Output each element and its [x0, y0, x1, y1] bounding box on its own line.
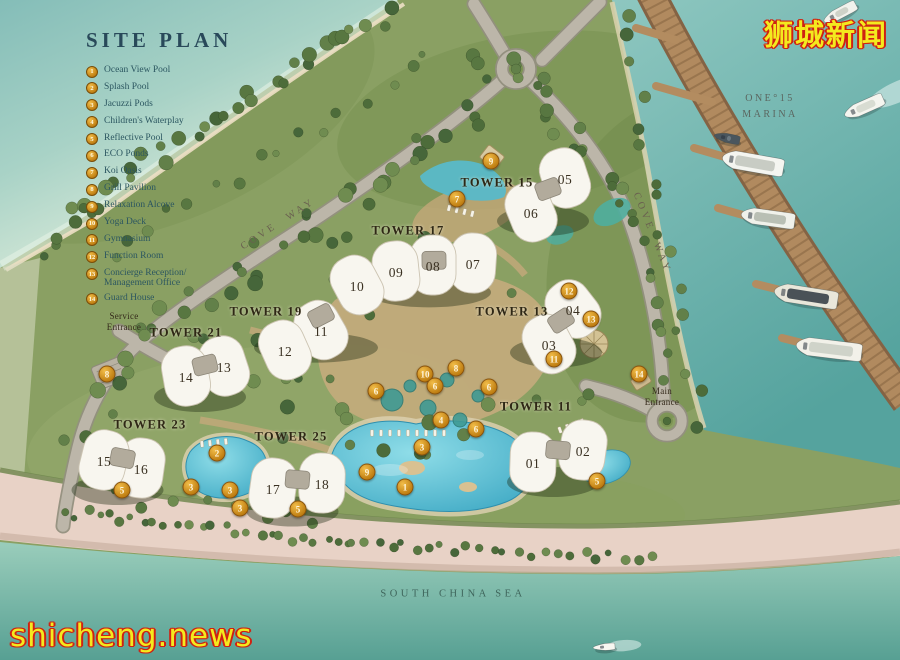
legend-label: Yoga Deck: [104, 217, 146, 227]
watermark-top-right: 狮城新闻: [764, 12, 888, 54]
legend-item-function-room: 12Function Room: [86, 251, 276, 264]
legend-item-grill-pavilion: 8Grill Pavilion: [86, 183, 276, 196]
legend: SITE PLAN 1Ocean View Pool2Splash Pool3J…: [86, 28, 276, 309]
service-entrance-label: Service Entrance: [107, 311, 141, 334]
tower-label-tower-21: TOWER 21: [150, 326, 223, 341]
legend-badge: 9: [86, 201, 98, 213]
tower-label-tower-11: TOWER 11: [500, 400, 572, 415]
legend-badge: 6: [86, 150, 98, 162]
map-badge-6: 6: [468, 421, 485, 438]
tower-label-tower-17: TOWER 17: [372, 224, 445, 239]
unit-11: 11: [314, 324, 328, 340]
map-badge-6: 6: [368, 383, 385, 400]
map-badge-9: 9: [483, 153, 500, 170]
map-badge-12: 12: [561, 283, 578, 300]
legend-item-ocean-view-pool: 1Ocean View Pool: [86, 65, 276, 78]
site-plan-image: SITE PLAN 1Ocean View Pool2Splash Pool3J…: [0, 0, 900, 660]
legend-badge: 7: [86, 167, 98, 179]
legend-item-eco-ponds: 6ECO Ponds: [86, 149, 276, 162]
legend-badge: 10: [86, 218, 98, 230]
watermark-bottom-left: shicheng.news: [10, 618, 253, 654]
legend-list: 1Ocean View Pool2Splash Pool3Jacuzzi Pod…: [86, 65, 276, 305]
legend-label: Relaxation Alcove: [104, 200, 174, 210]
unit-14: 14: [179, 370, 194, 386]
legend-item-reflective-pool: 5Reflective Pool: [86, 133, 276, 146]
legend-label: Splash Pool: [104, 82, 149, 92]
map-badge-3: 3: [232, 500, 249, 517]
labels-overlay: SITE PLAN 1Ocean View Pool2Splash Pool3J…: [0, 0, 900, 660]
legend-label: Concierge Reception/ Management Office: [104, 268, 208, 289]
legend-label: Koi Oasis: [104, 166, 142, 176]
legend-label: Grill Pavilion: [104, 183, 156, 193]
unit-10: 10: [350, 279, 365, 295]
map-badge-14: 14: [631, 366, 648, 383]
legend-item-yoga-deck: 10Yoga Deck: [86, 217, 276, 230]
legend-badge: 3: [86, 99, 98, 111]
unit-08: 08: [426, 259, 441, 275]
main-entrance-label: Main Entrance: [645, 386, 679, 409]
unit-09: 09: [389, 265, 404, 281]
unit-18: 18: [315, 477, 330, 493]
unit-07: 07: [466, 257, 481, 273]
map-badge-6: 6: [427, 378, 444, 395]
legend-item-children-s-waterplay: 4Children's Waterplay: [86, 116, 276, 129]
unit-15: 15: [97, 454, 112, 470]
map-badge-6: 6: [481, 379, 498, 396]
legend-item-splash-pool: 2Splash Pool: [86, 82, 276, 95]
unit-06: 06: [524, 206, 539, 222]
unit-16: 16: [134, 462, 149, 478]
map-badge-5: 5: [290, 501, 307, 518]
unit-04: 04: [566, 303, 581, 319]
legend-badge: 12: [86, 251, 98, 263]
map-badge-5: 5: [114, 482, 131, 499]
unit-01: 01: [526, 456, 541, 472]
legend-badge: 11: [86, 234, 98, 246]
legend-badge: 8: [86, 184, 98, 196]
unit-13: 13: [217, 360, 232, 376]
map-badge-5: 5: [589, 473, 606, 490]
map-badge-9: 9: [359, 464, 376, 481]
legend-item-jacuzzi-pods: 3Jacuzzi Pods: [86, 99, 276, 112]
legend-badge: 4: [86, 116, 98, 128]
legend-badge: 1: [86, 66, 98, 78]
map-badge-8: 8: [448, 360, 465, 377]
unit-17: 17: [266, 482, 281, 498]
map-badge-3: 3: [414, 439, 431, 456]
legend-label: Ocean View Pool: [104, 65, 170, 75]
legend-item-koi-oasis: 7Koi Oasis: [86, 166, 276, 179]
legend-badge: 13: [86, 268, 98, 280]
legend-item-concierge-reception-management-office: 13Concierge Reception/ Management Office: [86, 268, 276, 289]
legend-badge: 2: [86, 82, 98, 94]
tower-label-tower-25: TOWER 25: [255, 430, 328, 445]
tower-label-tower-23: TOWER 23: [114, 418, 187, 433]
page-title: SITE PLAN: [86, 28, 276, 53]
tower-label-tower-15: TOWER 15: [461, 176, 534, 191]
legend-label: Gymnasium: [104, 234, 150, 244]
marina-label: ONE°15 MARINA: [742, 91, 798, 123]
map-badge-3: 3: [222, 482, 239, 499]
map-badge-3: 3: [183, 479, 200, 496]
map-badge-7: 7: [449, 191, 466, 208]
unit-05: 05: [558, 172, 573, 188]
legend-item-relaxation-alcove: 9Relaxation Alcove: [86, 200, 276, 213]
legend-label: Children's Waterplay: [104, 116, 184, 126]
map-badge-4: 4: [433, 412, 450, 429]
map-badge-8: 8: [99, 366, 116, 383]
legend-label: ECO Ponds: [104, 149, 149, 159]
legend-label: Reflective Pool: [104, 133, 163, 143]
map-badge-11: 11: [546, 351, 563, 368]
cove-way-right-label: COVE WAY: [631, 191, 674, 275]
unit-12: 12: [278, 344, 293, 360]
map-badge-2: 2: [209, 445, 226, 462]
tower-label-tower-19: TOWER 19: [230, 305, 303, 320]
legend-badge: 14: [86, 293, 98, 305]
map-badge-13: 13: [583, 311, 600, 328]
legend-item-guard-house: 14Guard House: [86, 293, 276, 306]
tower-label-tower-13: TOWER 13: [476, 305, 549, 320]
sea-label: SOUTH CHINA SEA: [380, 589, 525, 600]
unit-02: 02: [576, 444, 591, 460]
legend-label: Jacuzzi Pods: [104, 99, 153, 109]
map-badge-1: 1: [397, 479, 414, 496]
legend-label: Function Room: [104, 251, 163, 261]
legend-label: Guard House: [104, 293, 154, 303]
legend-badge: 5: [86, 133, 98, 145]
